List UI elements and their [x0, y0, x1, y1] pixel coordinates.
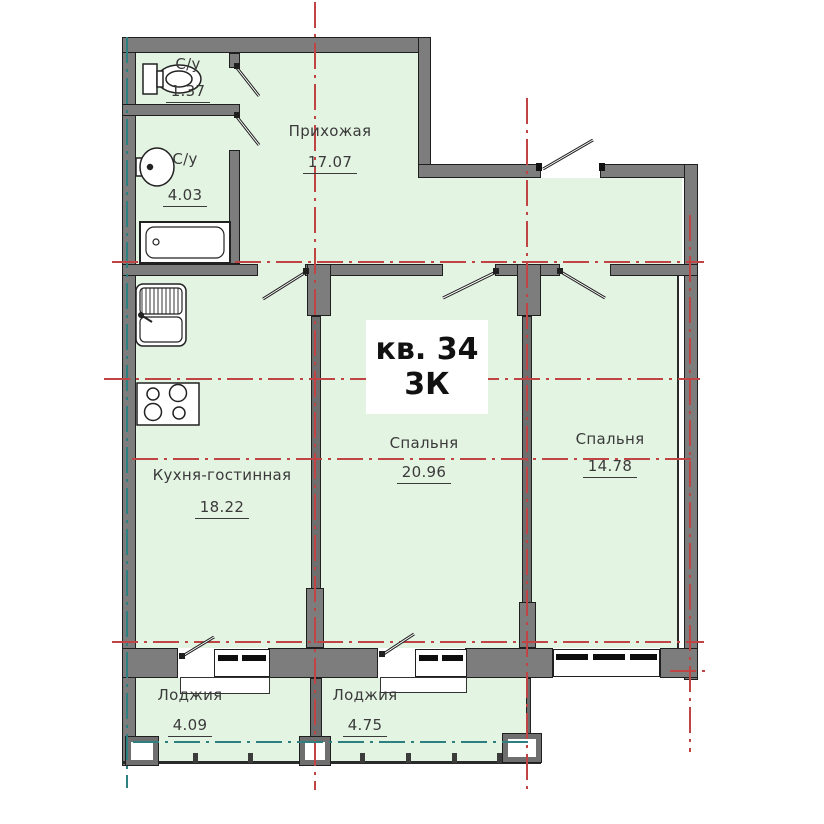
stove-icon [137, 383, 199, 425]
area-value: 4.75 [343, 716, 388, 737]
room-area-wc1: 1.37 [156, 82, 220, 100]
room-label-loggia1: Лоджия [140, 686, 240, 704]
area-value: 4.03 [163, 186, 208, 207]
area-value: 20.96 [397, 463, 451, 484]
room-area-bedroom1: 20.96 [364, 463, 484, 481]
room-area-wc2: 4.03 [150, 186, 220, 204]
area-value: 17.07 [303, 153, 357, 174]
area-value: 18.22 [195, 498, 249, 519]
room-label-loggia2: Лоджия [315, 686, 415, 704]
room-area-loggia1: 4.09 [140, 716, 240, 734]
room-area-bedroom2: 14.78 [550, 457, 670, 475]
bathtub-icon [140, 222, 230, 263]
kitchen-sink-icon [136, 284, 186, 346]
area-value: 14.78 [583, 457, 637, 478]
room-area-hallway: 17.07 [270, 153, 390, 171]
room-label-bedroom2: Спальня [550, 430, 670, 448]
area-value: 1.37 [166, 82, 211, 103]
room-area-kitchen: 18.22 [142, 498, 302, 516]
room-label-hallway: Прихожая [270, 122, 390, 140]
room-label-kitchen: Кухня-гостинная [142, 466, 302, 484]
room-label-wc2: С/у [150, 150, 220, 168]
room-area-loggia2: 4.75 [315, 716, 415, 734]
area-value: 4.09 [168, 716, 213, 737]
floorplan-canvas: кв. 34 3К С/у 1.37 С/у 4.03 Прихожая 17.… [0, 0, 824, 824]
apartment-number: кв. 34 [376, 333, 479, 366]
apartment-room-count: 3К [404, 368, 449, 401]
apartment-title-box: кв. 34 3К [366, 320, 488, 414]
room-label-wc1: С/у [156, 55, 220, 73]
room-label-bedroom1: Спальня [364, 434, 484, 452]
